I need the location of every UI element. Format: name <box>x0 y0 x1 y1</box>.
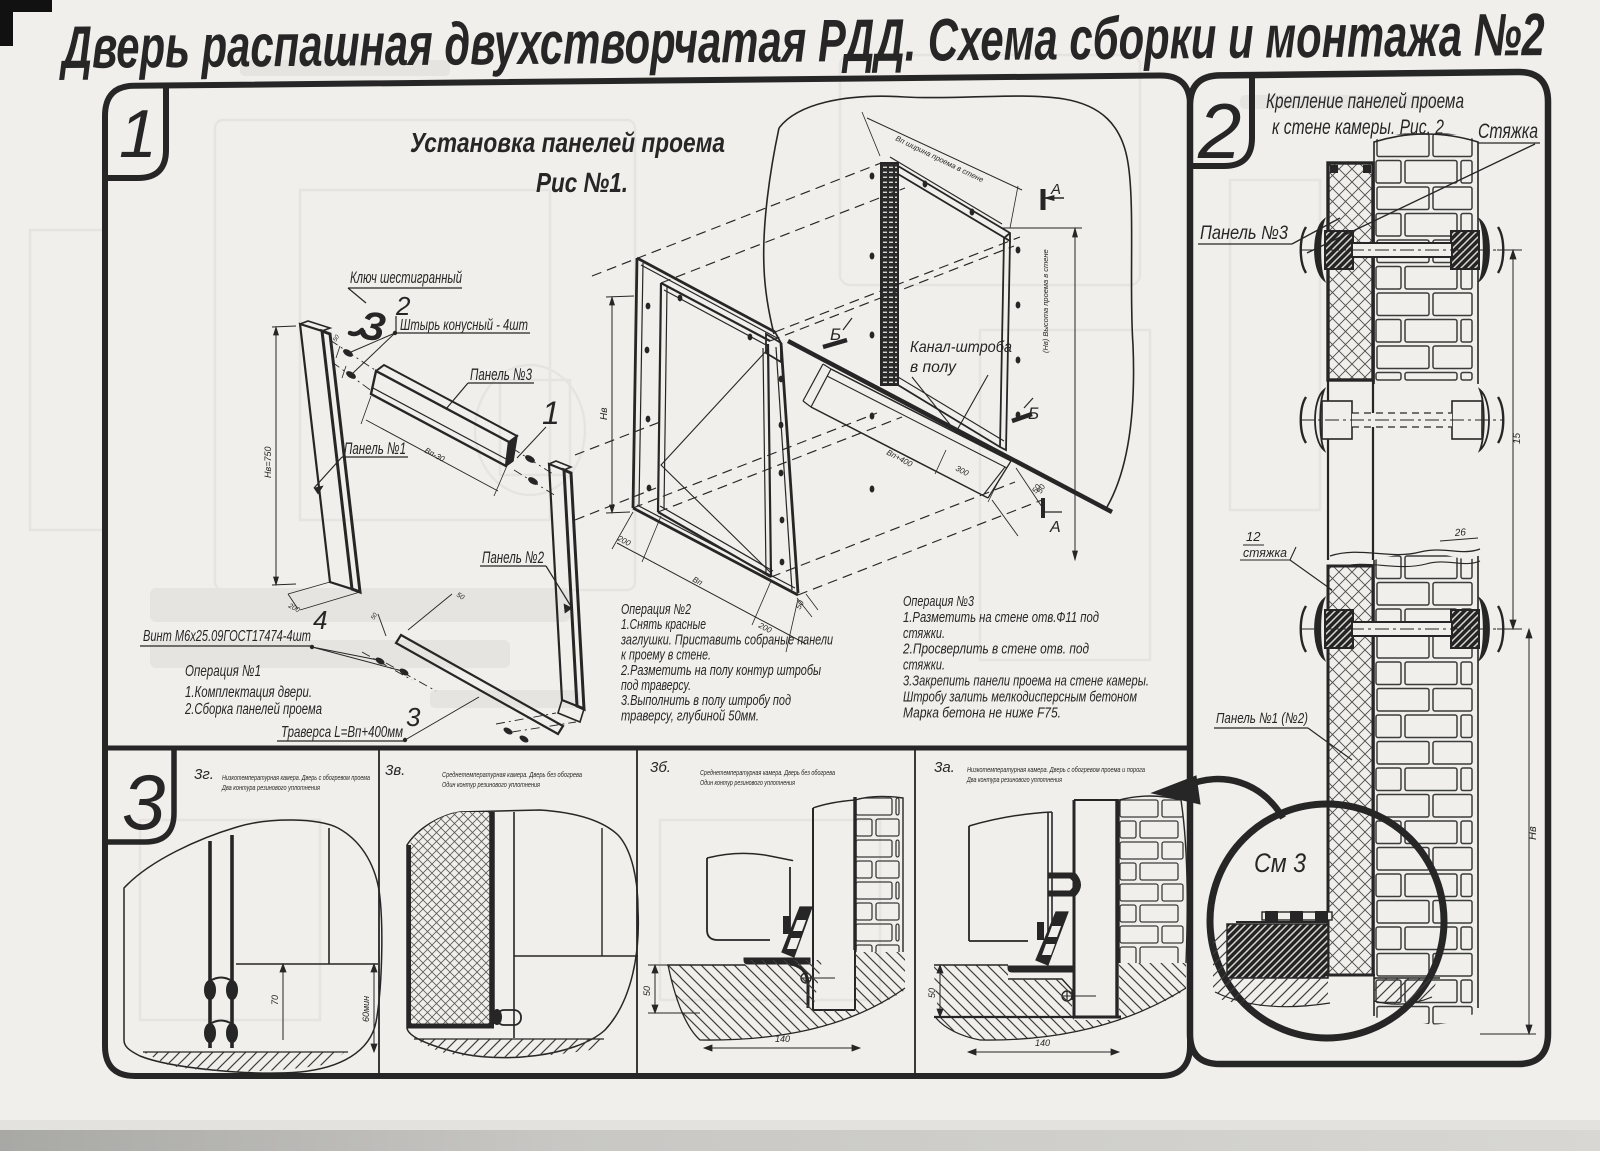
svg-text:Рис №1.: Рис №1. <box>536 167 628 198</box>
svg-text:Нв=750: Нв=750 <box>263 447 273 478</box>
svg-text:1: 1 <box>119 96 157 172</box>
svg-text:А: А <box>1050 181 1061 198</box>
svg-text:3в.: 3в. <box>385 762 405 779</box>
svg-text:Стяжка: Стяжка <box>1478 120 1538 143</box>
svg-text:1.Снять красные: 1.Снять красные <box>621 617 706 633</box>
svg-text:50: 50 <box>927 988 937 998</box>
svg-text:3а.: 3а. <box>934 759 955 776</box>
svg-text:Дверь распашная двухстворчатая: Дверь распашная двухстворчатая РДД. Схем… <box>58 1 1545 81</box>
svg-text:Операция №1: Операция №1 <box>185 663 261 680</box>
svg-text:15: 15 <box>1512 432 1523 444</box>
svg-text:50: 50 <box>642 986 652 996</box>
svg-text:3.Выполнить в полу штробу под: 3.Выполнить в полу штробу под <box>621 693 791 709</box>
svg-text:2: 2 <box>1197 87 1241 175</box>
svg-text:1.Комплектация двери.: 1.Комплектация двери. <box>185 684 312 701</box>
svg-text:заглушки. Приставить собраные: заглушки. Приставить собраные панели <box>620 632 833 648</box>
svg-text:3: 3 <box>406 702 421 732</box>
svg-text:Панель №3: Панель №3 <box>470 365 532 384</box>
svg-text:Штробу залить мелкодисперсным: Штробу залить мелкодисперсным бетоном <box>903 689 1137 705</box>
svg-text:Канал-штроба: Канал-штроба <box>910 339 1012 356</box>
svg-text:Один контур резинового уплотне: Один контур резинового уплотнения <box>442 780 540 789</box>
svg-text:стяжки.: стяжки. <box>903 658 945 674</box>
svg-text:Низкотемпературная камера. Две: Низкотемпературная камера. Дверь с обогр… <box>967 765 1145 774</box>
svg-text:Винт М6х25.09ГОСТ17474-4шт: Винт М6х25.09ГОСТ17474-4шт <box>143 628 311 645</box>
svg-text:Крепление панелей проема: Крепление панелей проема <box>1266 90 1464 113</box>
svg-text:3: 3 <box>122 758 165 846</box>
svg-text:Марка бетона не ниже F75.: Марка бетона не ниже F75. <box>903 705 1061 721</box>
svg-text:Два контура резинового уплотне: Два контура резинового уплотнения <box>966 775 1062 784</box>
svg-text:А: А <box>1049 519 1061 536</box>
svg-text:Панель №2: Панель №2 <box>482 548 544 567</box>
svg-text:140: 140 <box>775 1034 790 1044</box>
svg-text:2.Разметить на полу контур штр: 2.Разметить на полу контур штробы <box>620 663 821 679</box>
svg-text:Нв: Нв <box>599 408 610 420</box>
svg-text:4: 4 <box>313 605 327 635</box>
svg-text:(Нв) Высота проема в стене: (Нв) Высота проема в стене <box>1041 249 1050 353</box>
svg-text:Панель №1: Панель №1 <box>344 439 406 458</box>
svg-text:Траверса L=Вп+400мм: Траверса L=Вп+400мм <box>281 724 403 741</box>
svg-text:3г.: 3г. <box>194 766 214 783</box>
svg-text:2.Сборка панелей проема: 2.Сборка панелей проема <box>184 701 322 718</box>
svg-text:Два контура резинового уплотне: Два контура резинового уплотнения <box>221 783 320 792</box>
svg-text:26: 26 <box>1453 527 1466 539</box>
svg-text:1.Разметить на стене отв.Ф11 п: 1.Разметить на стене отв.Ф11 под <box>903 610 1099 626</box>
svg-text:3б.: 3б. <box>650 759 671 776</box>
svg-text:стяжки.: стяжки. <box>903 626 945 642</box>
svg-text:60мин: 60мин <box>361 996 371 1022</box>
svg-text:Операция №3: Операция №3 <box>903 594 974 610</box>
svg-text:2.Просверлить в стене отв.: 2.Просверлить в стене отв. под <box>902 642 1089 658</box>
svg-text:Штырь конусный - 4шт: Штырь конусный - 4шт <box>400 317 528 334</box>
svg-text:Среднетемпературная камера. Дв: Среднетемпературная камера. Дверь без об… <box>700 768 835 777</box>
svg-text:Панель №1 (№2): Панель №1 (№2) <box>1216 710 1308 727</box>
svg-text:3.Закрепить панели проема на с: 3.Закрепить панели проема на стене камер… <box>903 674 1149 690</box>
svg-text:1: 1 <box>542 395 560 431</box>
svg-text:в полу: в полу <box>910 359 957 376</box>
svg-text:Один контур резинового уплотне: Один контур резинового уплотнения <box>700 778 795 787</box>
svg-text:к стене камеры. Рис. 2: к стене камеры. Рис. 2 <box>1272 116 1444 139</box>
svg-text:Установка панелей проема: Установка панелей проема <box>410 127 725 158</box>
svg-text:к проему в стене.: к проему в стене. <box>621 648 711 664</box>
svg-text:12: 12 <box>1246 529 1261 544</box>
svg-text:Ключ шестигранный: Ключ шестигранный <box>350 268 462 287</box>
svg-text:140: 140 <box>1035 1038 1050 1048</box>
svg-text:под траверсу.: под траверсу. <box>621 678 691 694</box>
svg-text:Нв: Нв <box>1527 826 1539 840</box>
svg-text:Среднетемпературная камера. Дв: Среднетемпературная камера. Дверь без об… <box>442 770 582 779</box>
svg-text:Операция №2: Операция №2 <box>621 602 691 618</box>
svg-text:траверсу, глубиной 50мм.: траверсу, глубиной 50мм. <box>621 708 759 724</box>
svg-text:70: 70 <box>270 995 280 1005</box>
svg-text:Низкотемпературная камера. Две: Низкотемпературная камера. Дверь с обогр… <box>222 773 370 782</box>
svg-text:стяжка: стяжка <box>1243 545 1287 560</box>
svg-text:Панель №3: Панель №3 <box>1200 223 1288 244</box>
svg-text:См 3: См 3 <box>1254 848 1306 878</box>
